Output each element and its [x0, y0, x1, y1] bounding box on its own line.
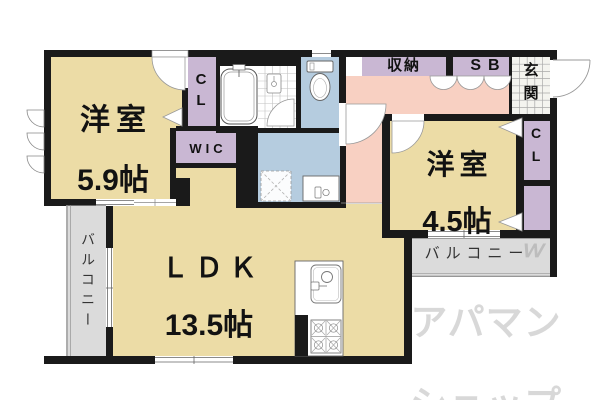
- storage-label: 収納: [362, 57, 446, 75]
- closet-cl2-lower-area: [522, 186, 550, 230]
- wall-bath-top: [216, 57, 301, 66]
- wall-bath-toilet: [296, 57, 301, 128]
- watermark-line2: ショップ: [393, 384, 579, 400]
- wall-duct-block: [236, 126, 258, 206]
- casement-window-arcs: [27, 110, 44, 173]
- floorplan: 洋室 5.9帖 ＬＤＫ 13.5帖 洋室 4.5帖 C L WIC 収納 SB …: [0, 0, 600, 400]
- washer-pad-icon: [261, 171, 291, 201]
- wall-toilet-right: [339, 57, 346, 103]
- ldk-label: ＬＤＫ 13.5帖: [129, 233, 289, 363]
- bathtub-icon: [221, 69, 257, 124]
- wall-bath-wash-divider: [216, 128, 346, 133]
- wall-room2-left: [382, 114, 390, 238]
- vanity-icon: [303, 176, 339, 201]
- ldk-name: ＬＤＫ: [129, 252, 289, 284]
- room-west2-size: 4.5帖: [395, 205, 519, 240]
- kitchen-icon: [295, 261, 343, 356]
- room-west1-label: 洋室 5.9帖: [49, 84, 177, 219]
- door-gap-room2: [392, 114, 424, 121]
- closet-cl1-label: C L: [189, 69, 213, 111]
- wall-room1-corner: [176, 178, 190, 206]
- wall-washroom-right: [340, 146, 346, 203]
- door-gap-washroom: [339, 103, 346, 146]
- wic-label: WIC: [172, 141, 241, 157]
- door-leaf-room1: [152, 51, 188, 58]
- door-gap-entrance: [550, 60, 557, 98]
- room-west2-label: 洋室 4.5帖: [395, 129, 519, 259]
- closet-cl2-label: C L: [524, 122, 548, 168]
- wall-balcony-left-lower: [106, 327, 113, 356]
- ldk-size: 13.5帖: [129, 308, 289, 344]
- wall-storage-sb-divider: [446, 56, 453, 76]
- watermark: アパマン ショップ: [393, 261, 579, 400]
- bath-faucet-icon: [233, 65, 245, 71]
- window-ldk-balcony-left: [106, 248, 113, 327]
- balcony-left-label: バルコニー: [76, 208, 96, 356]
- kitchen-stove-icon: [311, 320, 341, 353]
- watermark-line1: アパマン: [393, 302, 579, 343]
- room-west1-size: 5.9帖: [49, 163, 177, 199]
- room-west1-name: 洋室: [49, 103, 177, 139]
- entrance-label: 玄 関: [519, 59, 543, 105]
- wall-cl2-divider: [520, 180, 550, 186]
- wall-wic-bottom: [170, 163, 238, 168]
- wall-washroom-bottom: [236, 202, 346, 208]
- shoebox-label: SB: [453, 56, 518, 75]
- door-arc-entrance: [553, 60, 590, 97]
- wall-bath-left: [216, 66, 220, 128]
- room-west2-name: 洋室: [395, 148, 519, 182]
- kitchen-wall-stub: [295, 315, 308, 356]
